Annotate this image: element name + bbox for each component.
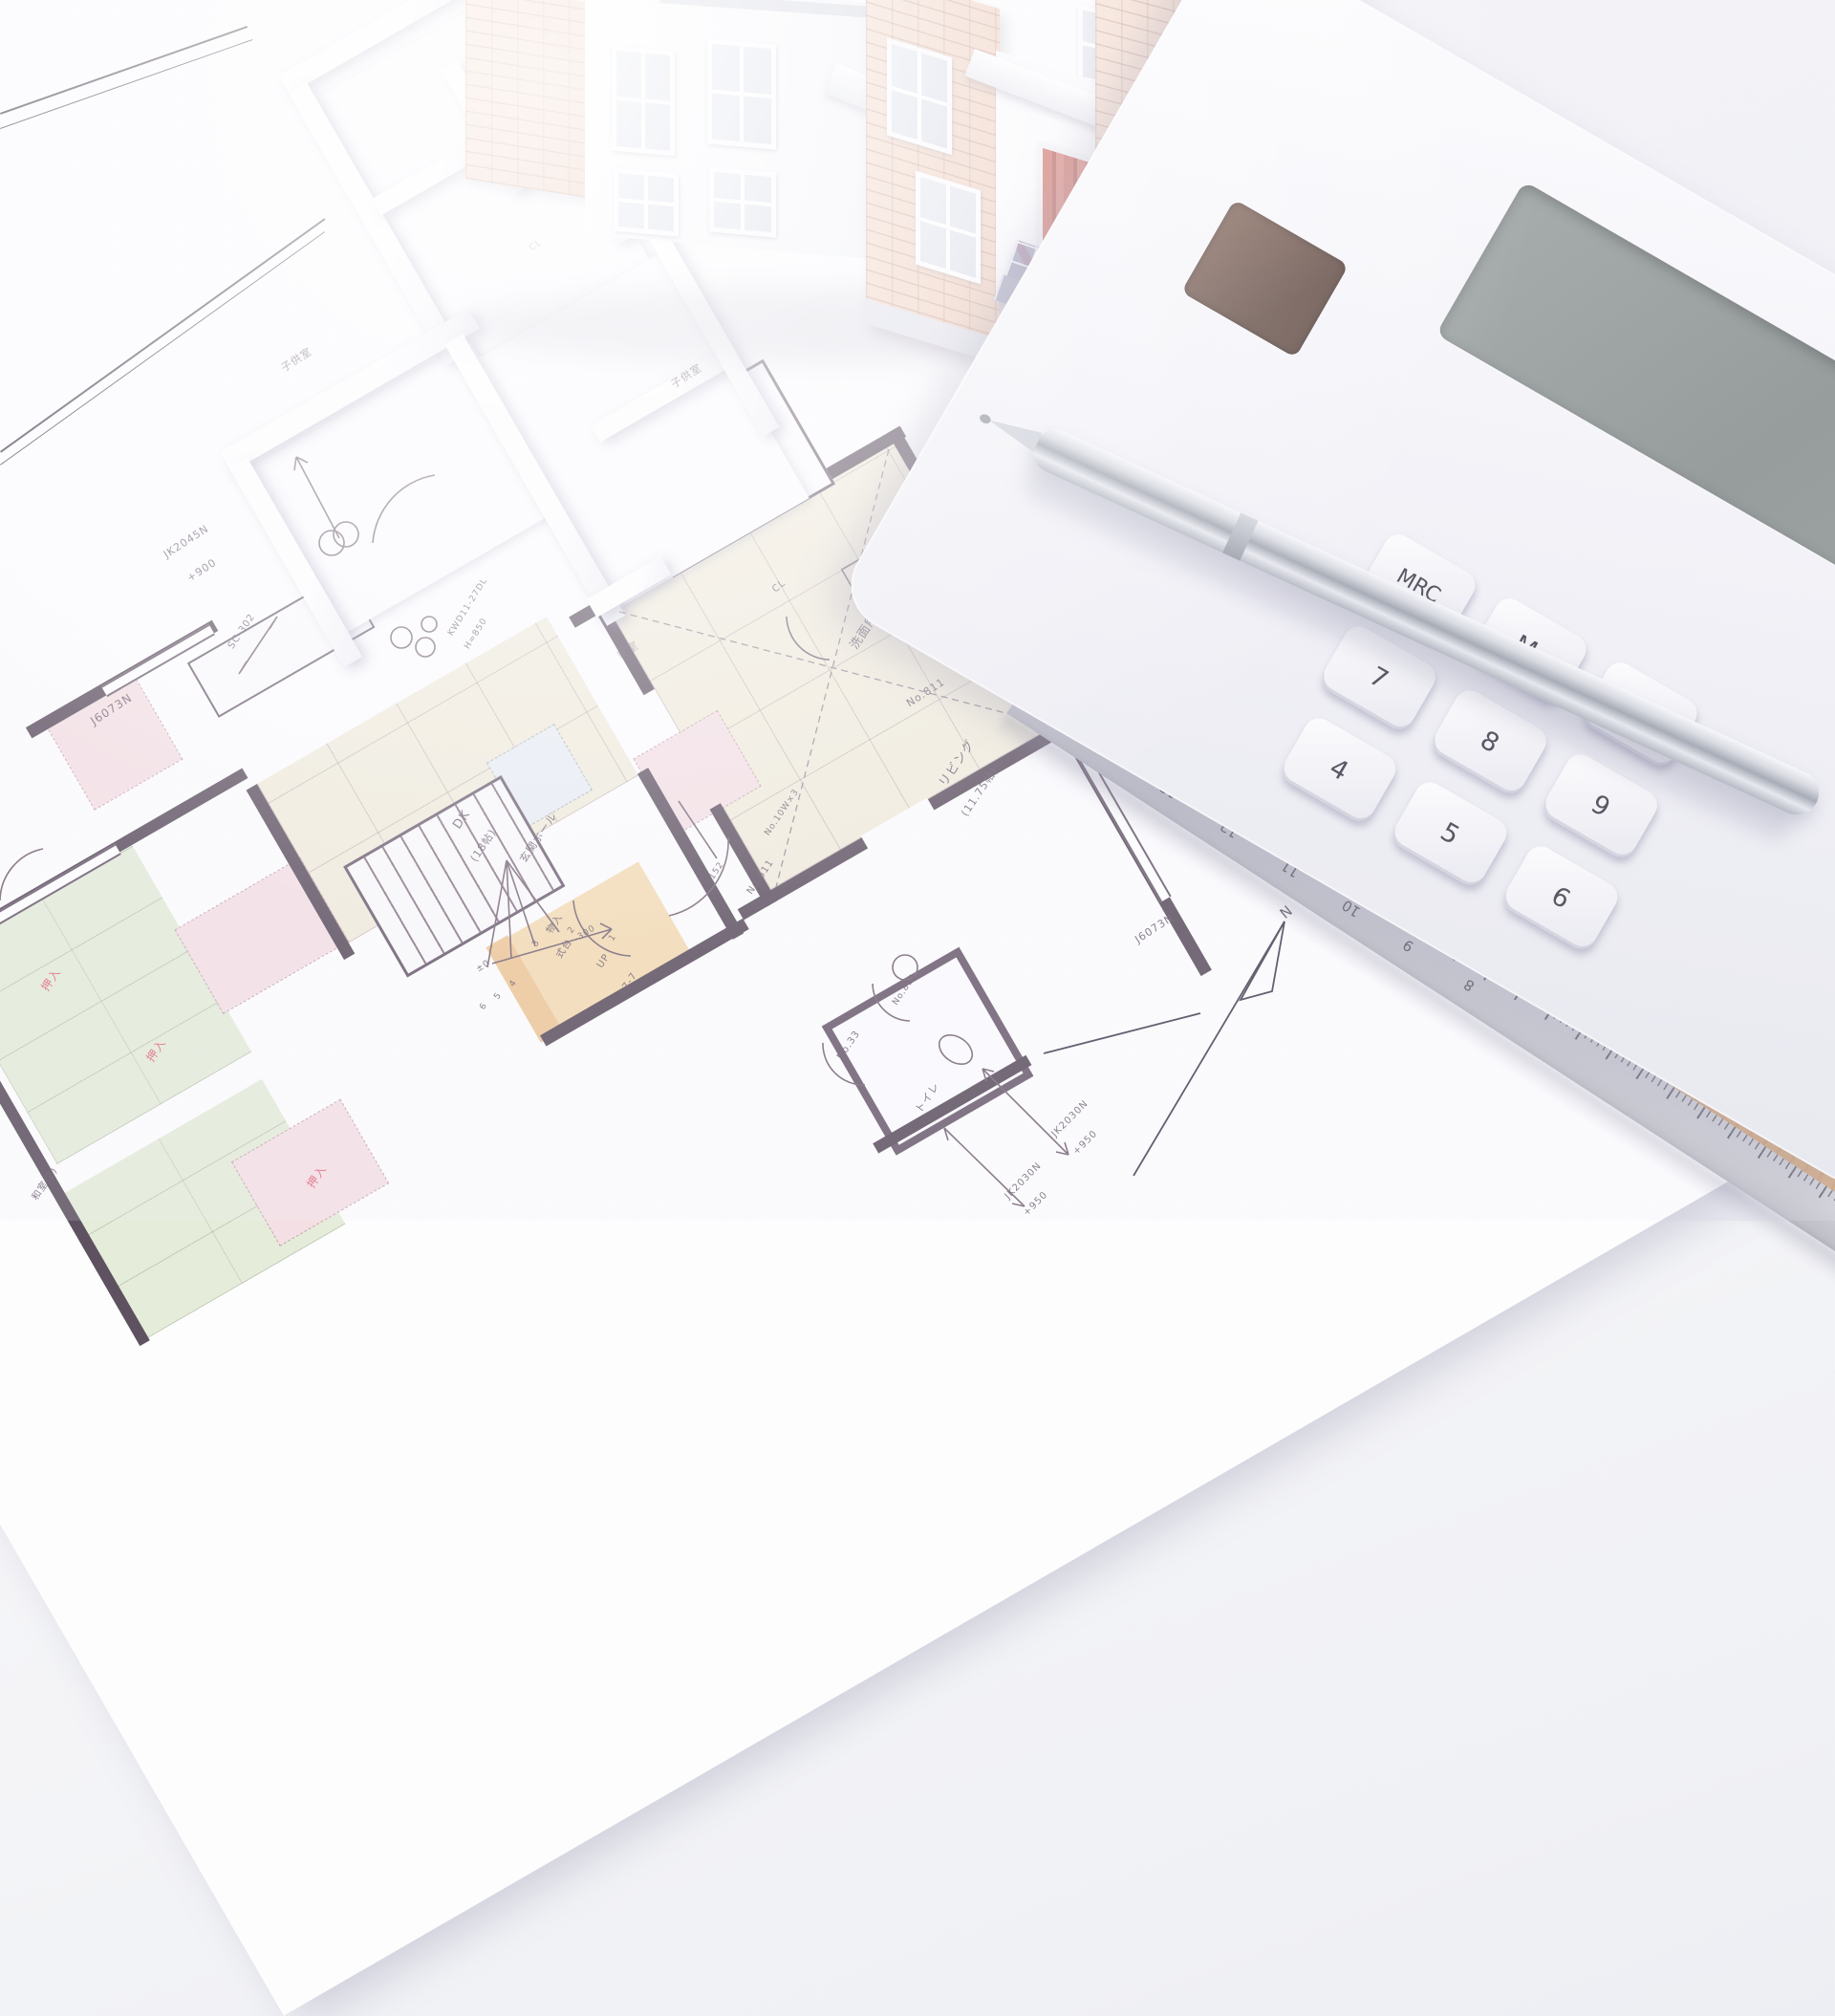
ruler-number: 8 xyxy=(1460,975,1478,994)
house-window xyxy=(707,38,776,149)
house-window xyxy=(612,45,675,156)
house-white-wall xyxy=(585,0,870,259)
ruler-number: 9 xyxy=(1400,936,1417,955)
north-arrow xyxy=(1044,921,1284,1176)
house-window xyxy=(614,168,679,237)
house-window xyxy=(709,166,776,237)
house-window xyxy=(916,170,981,284)
house-brick-wall-left xyxy=(465,0,588,198)
house-window xyxy=(887,37,952,155)
